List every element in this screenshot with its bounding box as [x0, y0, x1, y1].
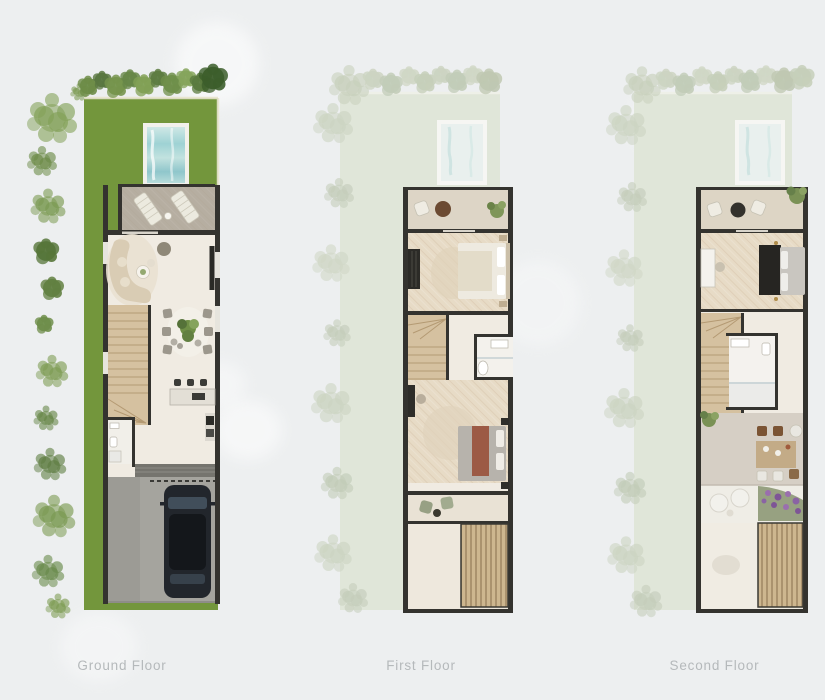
tv-unit [210, 246, 215, 290]
wall [403, 187, 408, 613]
wall [474, 334, 513, 337]
pool-faded [437, 120, 487, 185]
oven [206, 416, 214, 425]
second-floor-plan [616, 63, 813, 620]
pillow [496, 453, 504, 470]
side-table [727, 510, 734, 517]
staircase [108, 305, 151, 425]
garage [108, 477, 215, 602]
sliding-door [736, 230, 768, 232]
nightstand [501, 482, 509, 489]
chair [789, 469, 799, 479]
first-floor-label: First Floor [325, 658, 517, 673]
bathroom [726, 333, 778, 410]
bathroom [474, 334, 513, 380]
lamp [774, 297, 778, 301]
round-table [435, 201, 451, 217]
chair [790, 425, 802, 437]
tree-icon [790, 65, 815, 90]
wall [215, 185, 220, 604]
nightstand [501, 418, 509, 425]
tree-icon [27, 93, 77, 143]
wall [474, 377, 513, 380]
wall [118, 184, 122, 234]
tree-icon [35, 315, 54, 334]
ground-floor-plan [22, 66, 222, 618]
wall [403, 609, 513, 613]
round-table [731, 203, 746, 218]
toilet [478, 361, 488, 375]
wall [148, 305, 151, 425]
balcony [403, 190, 513, 233]
shower [109, 451, 121, 462]
side-table [165, 213, 172, 220]
tree-icon [380, 73, 404, 97]
pool [143, 123, 189, 187]
wc [108, 417, 135, 467]
wall [108, 417, 135, 420]
shower [729, 383, 775, 407]
side-table [433, 509, 441, 517]
ground-floor-label: Ground Floor [22, 658, 222, 673]
duvet [458, 251, 492, 291]
coffee-table [147, 259, 155, 267]
wall [726, 407, 778, 410]
tree-icon [34, 406, 59, 431]
entry-steps [135, 464, 215, 477]
pillow [497, 247, 505, 267]
roof-deck [403, 521, 513, 613]
roof-terrace [700, 411, 803, 485]
vanity [491, 340, 508, 348]
wall [103, 230, 220, 235]
wall [696, 187, 701, 613]
tree-icon [673, 73, 697, 97]
pillow [497, 275, 505, 295]
bed [458, 235, 510, 307]
tree-column [27, 93, 77, 619]
wall [403, 311, 513, 315]
chair [773, 471, 783, 481]
sliding-door [122, 232, 158, 235]
wall [726, 333, 778, 336]
balcony [696, 187, 808, 234]
rug [712, 555, 740, 575]
bedroom [701, 233, 805, 311]
appliance [206, 429, 214, 437]
chair [440, 496, 454, 510]
tree-icon [41, 277, 65, 301]
wall [775, 333, 778, 410]
nightstand [499, 235, 507, 241]
nightstand [499, 301, 507, 307]
pool-faded [735, 120, 785, 185]
wall [132, 417, 135, 467]
bokeh-light [214, 400, 282, 460]
tree-icon [36, 355, 69, 388]
chair [773, 426, 783, 436]
lounge-chair [731, 489, 749, 507]
bedroom-1 [408, 233, 510, 313]
chair [757, 426, 767, 436]
wall [403, 491, 513, 495]
dining-set [162, 307, 213, 357]
wall [474, 334, 477, 380]
terrace [118, 184, 215, 234]
wardrobe [408, 249, 420, 289]
vanity [731, 339, 749, 347]
lamp [774, 241, 778, 245]
pouf [157, 242, 171, 256]
tree-icon [476, 68, 502, 94]
second-floor-label: Second Floor [616, 658, 813, 673]
bar-stool [200, 379, 207, 386]
bed [458, 418, 509, 489]
wall [696, 609, 808, 613]
chair [416, 394, 426, 404]
window [215, 306, 220, 332]
rear-balcony [403, 491, 513, 521]
sliding-door [443, 230, 475, 232]
hedge-row [70, 64, 228, 101]
tv-unit [408, 385, 415, 417]
toilet [110, 437, 117, 447]
table-plant-icon [140, 269, 146, 275]
chair [715, 262, 725, 272]
bar-stool [187, 379, 194, 386]
tree-icon [199, 64, 228, 93]
tree-icon [32, 555, 65, 588]
wall [403, 187, 513, 190]
car-icon [160, 485, 215, 598]
headboard [506, 243, 510, 299]
sofa-cushion [117, 257, 127, 267]
chair [757, 471, 767, 481]
sink [110, 423, 119, 429]
tree-icon [46, 594, 71, 619]
window [103, 352, 108, 374]
pillow [781, 273, 788, 291]
pergola-deck [696, 523, 808, 613]
wall [696, 309, 808, 312]
bowl [786, 445, 791, 450]
tree-icon [27, 146, 57, 176]
pillow [781, 251, 788, 269]
bar-stool [174, 379, 181, 386]
sofa-cushion [120, 277, 130, 287]
lounge [701, 485, 803, 523]
first-floor-plan [325, 63, 517, 620]
lounge-chair [710, 494, 728, 512]
tree-icon [31, 189, 66, 224]
sink [192, 393, 205, 400]
bedroom-2 [408, 380, 509, 489]
tree-icon [33, 238, 59, 264]
window [215, 252, 220, 278]
headboard-wall [759, 245, 781, 295]
toilet [762, 343, 770, 355]
tree-icon [34, 448, 67, 481]
pillow [496, 430, 504, 447]
desk [701, 249, 715, 287]
tree-icon [33, 495, 76, 538]
bed-runner [472, 426, 489, 476]
